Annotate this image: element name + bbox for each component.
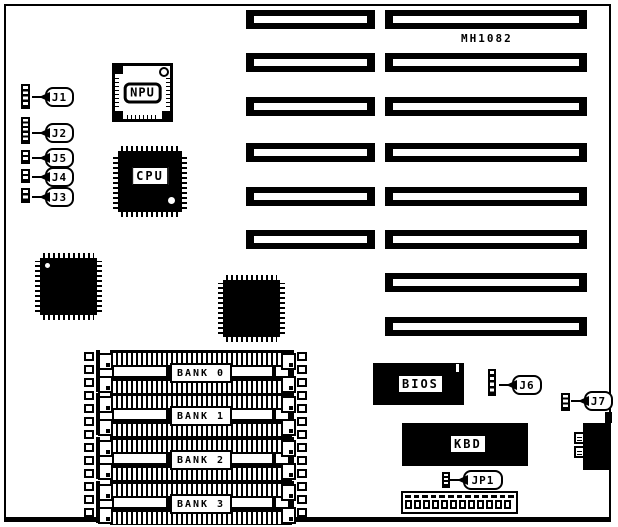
chip-notch [456,364,459,372]
npu-chip-label: NPU [123,82,162,103]
chip-body [223,280,280,337]
jumper-callout-jp1: JP1 [463,470,503,490]
pin-header-jp1 [442,472,450,488]
slot-key-stripe [393,59,579,66]
pin-header-segments [23,119,28,142]
socket-pins [166,78,170,107]
slot-key-stripe [254,59,367,66]
power-connector [401,491,518,514]
simm-module-bar [230,496,274,509]
pin-header-j4 [21,169,30,183]
isa-slot-extension-6 [246,230,375,249]
simm-clip [98,376,113,393]
solder-pad [84,417,94,426]
solder-pad [84,469,94,478]
solder-pad [297,508,307,517]
pin-header-segments [444,474,448,486]
isa-slot-4 [385,143,587,162]
slot-key-stripe [254,193,367,200]
solder-pad [297,482,307,491]
pin-header-j2 [21,117,30,144]
isa-slot-extension-5 [246,187,375,206]
pin-header-segments [23,86,28,107]
npu-socket: NPU [112,63,173,122]
power-connector-pins [405,495,514,498]
jumper-callout-j3: J3 [45,187,74,207]
pin-header-j6 [488,369,496,396]
pin-header-segments [23,152,28,162]
solder-pad [297,391,307,400]
solder-pad [297,495,307,504]
jumper-callout-j2: J2 [45,123,74,143]
pin-header-j5 [21,150,30,164]
simm-clip [281,376,296,393]
pin-header-segments [563,395,568,409]
slot-key-stripe [393,149,579,156]
pin-header-j3 [21,188,30,203]
pin1-marker-icon [159,67,169,77]
solder-pad [297,378,307,387]
chip-pins [43,315,94,320]
keyboard-din-connector [605,412,612,423]
solder-pad [84,378,94,387]
solder-pad [84,456,94,465]
kbd-chip-label: KBD [451,436,485,452]
slot-key-stripe [393,236,579,243]
slot-key-stripe [254,236,367,243]
solder-pad [297,417,307,426]
jumper-callout-j7: J7 [584,391,613,411]
memory-bank-3: BANK 3 [96,481,294,523]
simm-clip [281,396,296,413]
bank-label-1: BANK 1 [170,406,232,426]
memory-bank-1: BANK 1 [96,393,294,435]
slot-key-stripe [393,103,579,110]
simm-clip [98,463,113,480]
simm-clip [281,484,296,501]
solder-pad [84,482,94,491]
simm-clip [281,440,296,457]
solder-pad [84,404,94,413]
simm-clip [281,507,296,524]
slot-key-stripe [393,193,579,200]
slot-key-stripe [254,16,367,23]
power-connector-sockets [405,500,514,509]
solder-pad [84,365,94,374]
chip-pins [97,261,102,312]
bios-chip-label: BIOS [397,374,444,394]
solder-pad [84,495,94,504]
board-id-label: MH1082 [461,32,513,45]
socket-pins [115,78,119,107]
simm-clip [281,353,296,370]
motherboard-diagram: MH1082 NPU CPU [0,0,618,527]
isa-slot-7 [385,273,587,292]
slot-key-stripe [393,16,579,23]
solder-pad [297,404,307,413]
solder-pad [297,469,307,478]
isa-slot-8 [385,317,587,336]
pin-header-segments [23,190,28,201]
socket-corner [115,66,123,74]
bank-label-0: BANK 0 [170,363,232,383]
simm-module-bar [230,408,274,421]
pin-header-segments [490,371,494,394]
qfp-chip-2 [218,275,285,342]
solder-pad [297,352,307,361]
simm-clip [98,507,113,524]
solder-pad [84,352,94,361]
socket-corner [115,111,123,119]
simm-clip [98,353,113,370]
simm-clip [281,463,296,480]
simm-clip [98,419,113,436]
pin-header-j1 [21,84,30,109]
isa-slot-6 [385,230,587,249]
isa-slot-extension-1 [246,10,375,29]
jumper-callout-j1: J1 [45,87,74,107]
pin-header-j7 [561,393,570,411]
isa-slot-extension-2 [246,53,375,72]
isa-slot-5 [385,187,587,206]
cpu-chip: CPU [113,146,187,217]
solder-pad [297,430,307,439]
bank-label-3: BANK 3 [170,494,232,514]
jumper-callout-j6: J6 [512,375,542,395]
din-pin-block [574,432,585,444]
slot-key-stripe [393,323,579,330]
simm-clip [98,440,113,457]
solder-pad [84,508,94,517]
simm-clip [98,396,113,413]
kbd-chip: KBD [402,423,528,466]
simm-module-bar [230,365,274,378]
isa-slot-1 [385,10,587,29]
keyboard-din-connector [583,423,611,470]
din-pin-block [574,446,585,458]
solder-pad [297,443,307,452]
solder-pad [84,391,94,400]
bank-label-2: BANK 2 [170,450,232,470]
chip-pins [121,212,179,217]
chip-pins [182,154,187,209]
isa-slot-extension-3 [246,97,375,116]
pin1-dot-icon [168,197,175,204]
solder-pad [297,365,307,374]
simm-module-bar [230,452,274,465]
simm-clip [281,419,296,436]
socket-corner [162,111,170,119]
socket-pins [127,115,158,119]
jumper-callout-j4: J4 [45,167,74,187]
jumper-callout-j5: J5 [45,148,74,168]
slot-key-stripe [393,279,579,286]
slot-key-stripe [254,103,367,110]
simm-module-bar [112,408,168,421]
solder-pad [84,430,94,439]
isa-slot-3 [385,97,587,116]
solder-pad [84,443,94,452]
pin1-dot-icon [45,263,50,268]
simm-module-bar [112,365,168,378]
solder-pad [297,456,307,465]
chip-pins [226,337,277,342]
memory-bank-0: BANK 0 [96,350,294,392]
memory-bank-2: BANK 2 [96,437,294,479]
simm-module-bar [112,452,168,465]
qfp-chip-1 [35,253,102,320]
isa-slot-2 [385,53,587,72]
isa-slot-extension-4 [246,143,375,162]
simm-module-bar [112,496,168,509]
bios-chip: BIOS [373,363,464,405]
chip-pins [280,283,285,334]
pin-header-segments [23,171,28,181]
slot-key-stripe [254,149,367,156]
simm-clip [98,484,113,501]
cpu-chip-label: CPU [132,167,168,185]
